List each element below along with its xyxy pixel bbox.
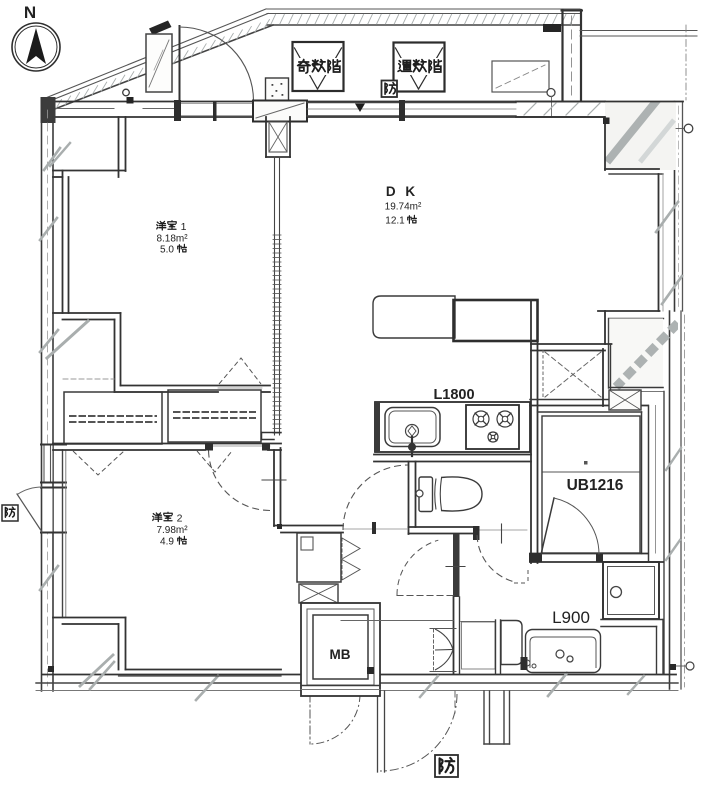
svg-text:12.1: 12.1 <box>385 216 405 227</box>
svg-text:N: N <box>24 3 36 22</box>
svg-text:L1800: L1800 <box>433 387 474 403</box>
svg-text:L900: L900 <box>552 608 590 627</box>
svg-text:19.74m²: 19.74m² <box>385 202 422 213</box>
svg-text:5.0: 5.0 <box>160 245 174 256</box>
svg-text:UB1216: UB1216 <box>567 477 624 494</box>
svg-text:2: 2 <box>177 513 183 525</box>
svg-text:MB: MB <box>330 647 351 662</box>
svg-text:D K: D K <box>386 184 418 199</box>
svg-text:7.98m²: 7.98m² <box>156 525 188 536</box>
svg-text:1: 1 <box>181 221 187 233</box>
svg-text:4.9: 4.9 <box>160 537 174 548</box>
svg-text:8.18m²: 8.18m² <box>156 234 188 245</box>
